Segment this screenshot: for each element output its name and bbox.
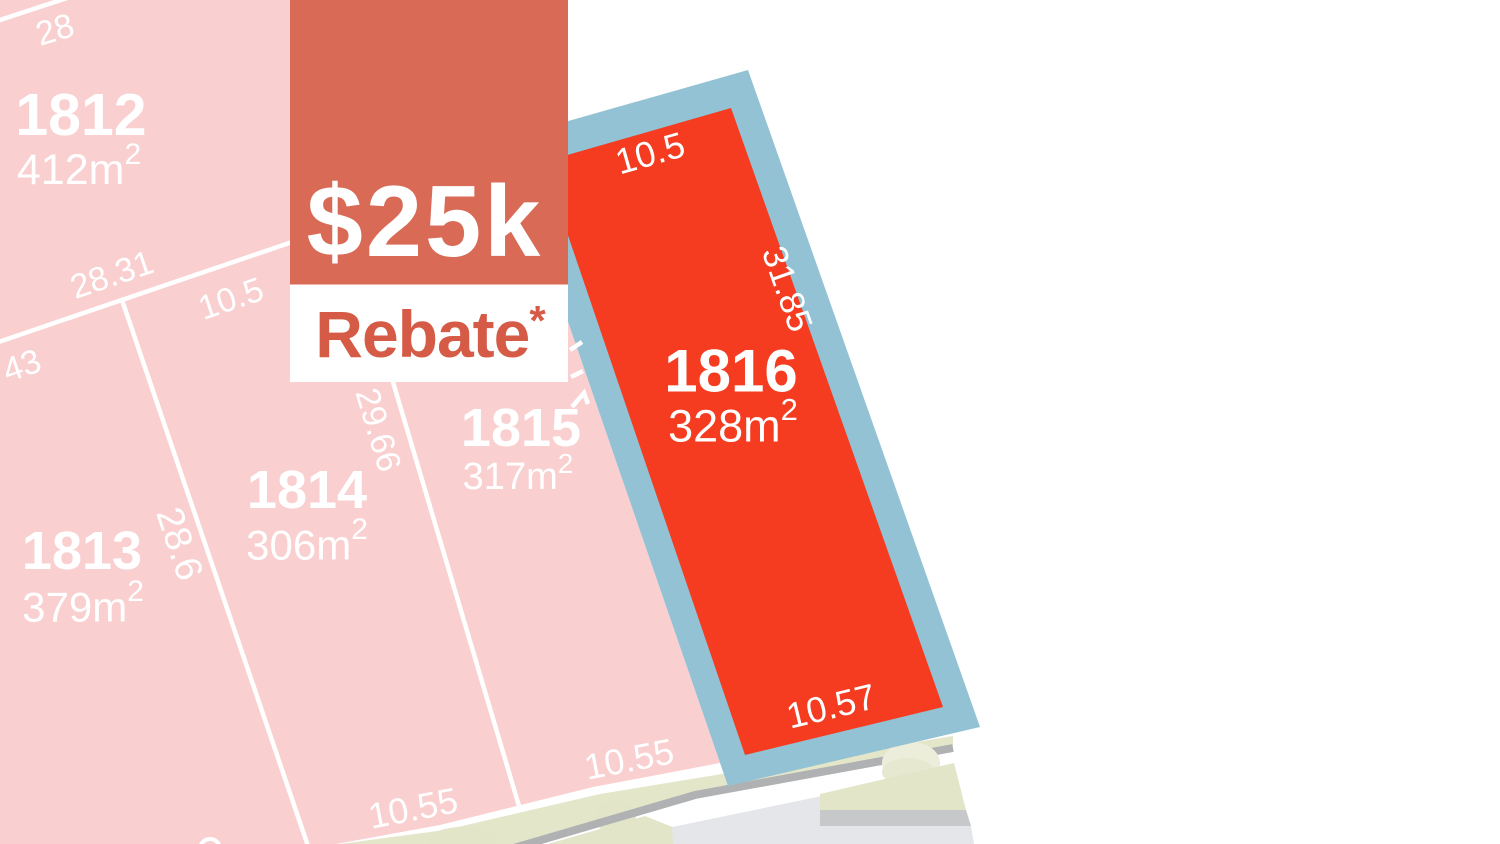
svg-text:306m2: 306m2 (246, 513, 368, 569)
svg-text:1813: 1813 (22, 521, 142, 581)
svg-text:412m2: 412m2 (17, 138, 141, 195)
svg-text:1816: 1816 (664, 338, 797, 405)
svg-text:$25k: $25k (307, 166, 544, 278)
svg-text:317m2: 317m2 (463, 448, 574, 499)
svg-text:1814: 1814 (247, 460, 367, 520)
svg-text:328m2: 328m2 (668, 392, 798, 452)
svg-text:Rebate*: Rebate* (315, 297, 546, 372)
svg-text:379m2: 379m2 (22, 575, 144, 631)
